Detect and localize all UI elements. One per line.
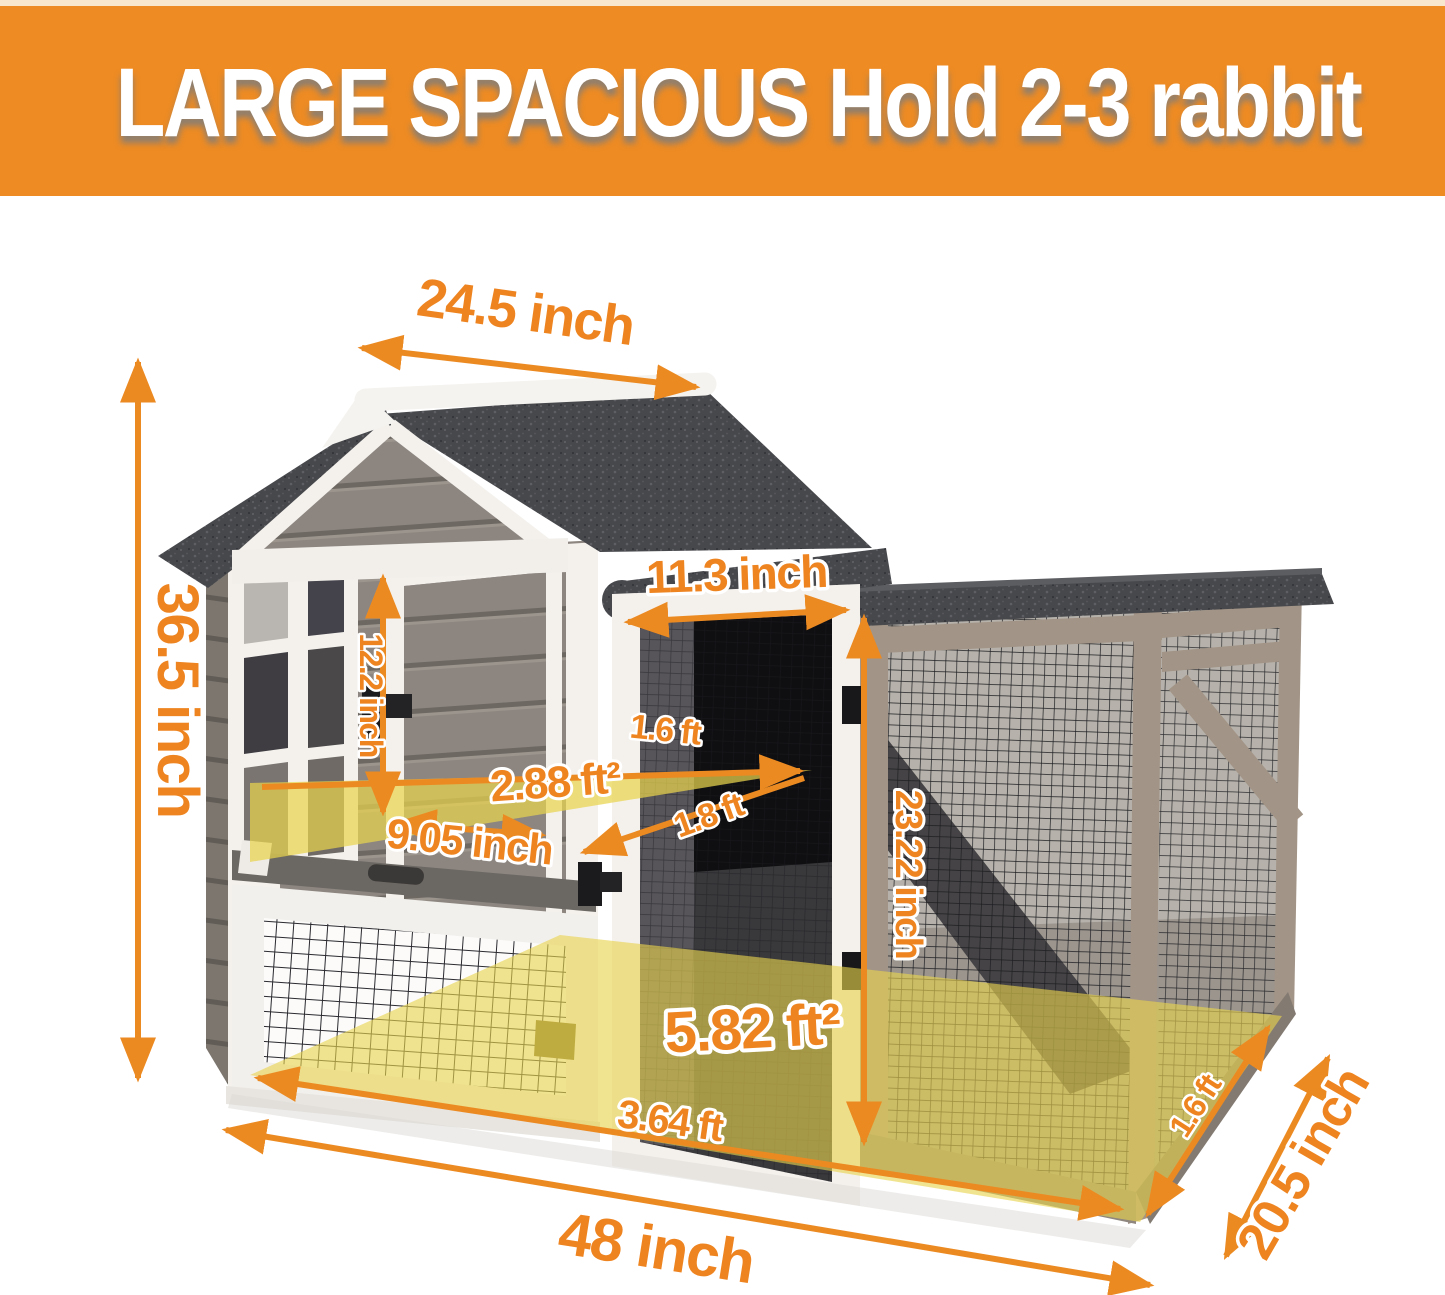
hutch-dimension-diagram: 24.5 inch 36.5 inch 11.3 inch 12.2 inch …	[0, 196, 1445, 1295]
dim-total-height: 36.5 inch	[145, 583, 210, 818]
door-hinge-top	[842, 686, 862, 724]
ridge-cap	[366, 384, 705, 400]
dim-run-height: 23.22 inch	[887, 790, 929, 959]
dim-roof-width: 24.5 inch	[414, 267, 638, 357]
dim-platform-depth: 1.6 ft	[628, 707, 703, 752]
header-banner: LARGE SPACIOUS Hold 2-3 rabbit	[0, 0, 1445, 196]
dim-door-width: 11.3 inch	[645, 545, 828, 603]
dim-total-depth: 20.5 inch	[1226, 1058, 1381, 1268]
dim-platform-area: 2.88 ft²	[489, 754, 623, 812]
dim-door-height: 12.2 inch	[353, 633, 389, 756]
product-infographic: { "header": { "title": "LARGE SPACIOUS H…	[0, 0, 1445, 1295]
page-title: LARGE SPACIOUS Hold 2-3 rabbit	[116, 0, 1330, 190]
dim-floor-area: 5.82 ft²	[663, 991, 842, 1065]
window-pane	[308, 646, 344, 748]
window-pane	[244, 652, 288, 754]
